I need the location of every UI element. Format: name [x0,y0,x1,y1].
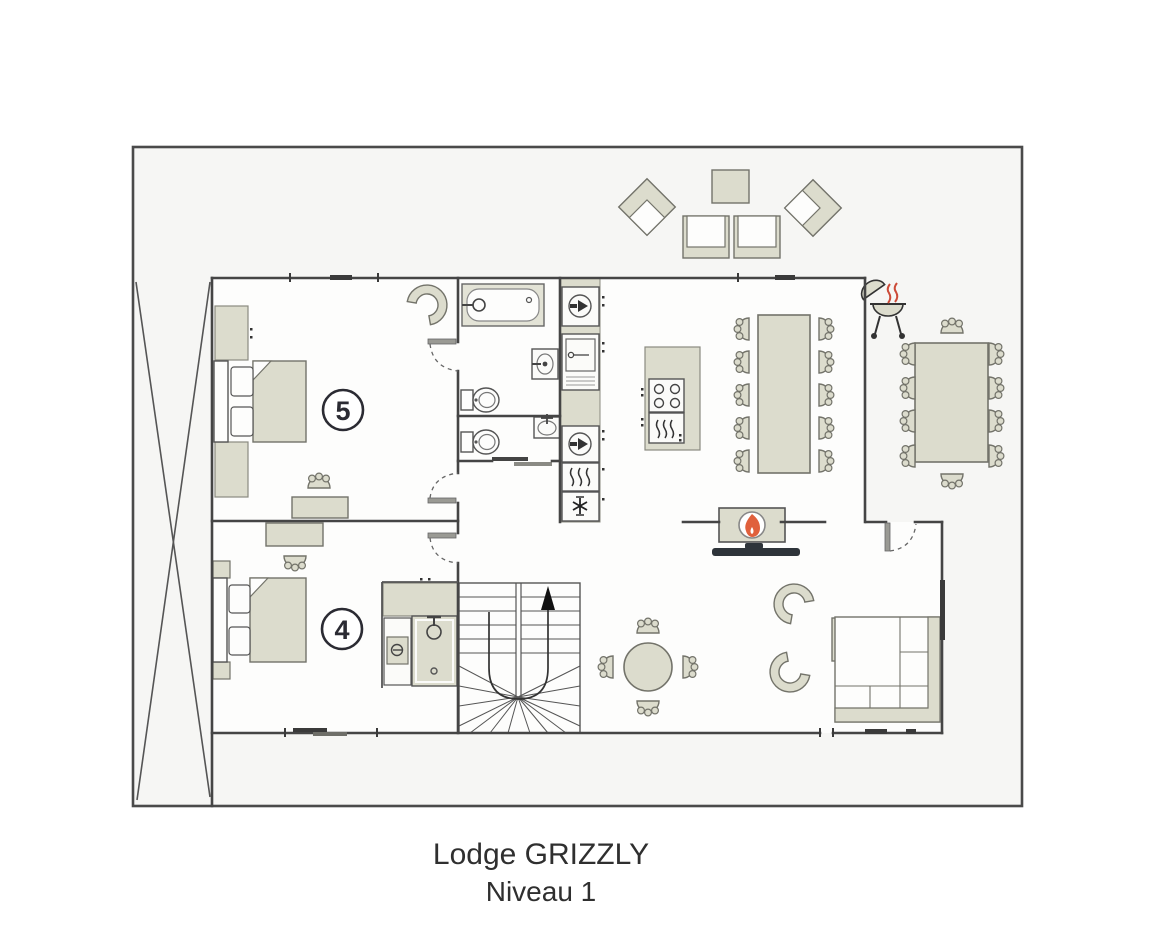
vanity-counter [383,583,458,616]
washbasin [534,414,560,438]
washbasin [532,349,558,379]
kitchen-sink-top [562,287,599,326]
svg-text:5: 5 [335,396,350,426]
wardrobe [215,306,248,360]
shower [412,616,457,686]
room-label-5: 5 [323,390,363,430]
lounge-chair-square-right [734,216,780,258]
wall-oven [562,463,599,491]
plan-subtitle: Niveau 1 [141,874,941,910]
terrace-dining-table [915,343,988,462]
double-bed [214,361,306,442]
kitchen-sink-main [562,426,599,462]
double-bed [213,578,306,662]
toilet-icon [461,388,499,412]
floor-plan-page: 5 4 [0,0,1152,929]
round-table [624,643,672,691]
bathtub-icon [462,284,544,326]
dining-table [758,315,810,473]
desk [292,497,348,518]
washing-machine-icon [384,618,411,685]
plan-title: Lodge GRIZZLY [141,836,941,874]
nightstand [213,662,230,679]
wardrobe [215,442,248,497]
desk [266,523,323,546]
nightstand [213,561,230,578]
floor-plan-drawing: 5 4 [0,0,1152,929]
dishwasher [562,334,599,390]
lounge-chair-square-left [683,216,729,258]
oven-heat-icon [649,413,684,443]
fireplace [719,508,785,542]
room-label-4: 4 [322,609,362,649]
bathroom-2 [383,578,458,686]
corner-sofa [835,617,940,722]
kitchen-counter-run [560,278,605,522]
stove-burners-icon [649,379,684,412]
desk-chair [284,556,306,571]
toilet-icon [461,430,499,454]
terrace-side-table [712,170,749,203]
staircase [459,583,580,733]
svg-text:4: 4 [334,615,349,645]
freezer-snowflake-icon [562,492,599,521]
plan-title-block: Lodge GRIZZLY Niveau 1 [141,836,941,910]
kitchen-island [641,347,700,450]
desk-chair [308,473,330,488]
